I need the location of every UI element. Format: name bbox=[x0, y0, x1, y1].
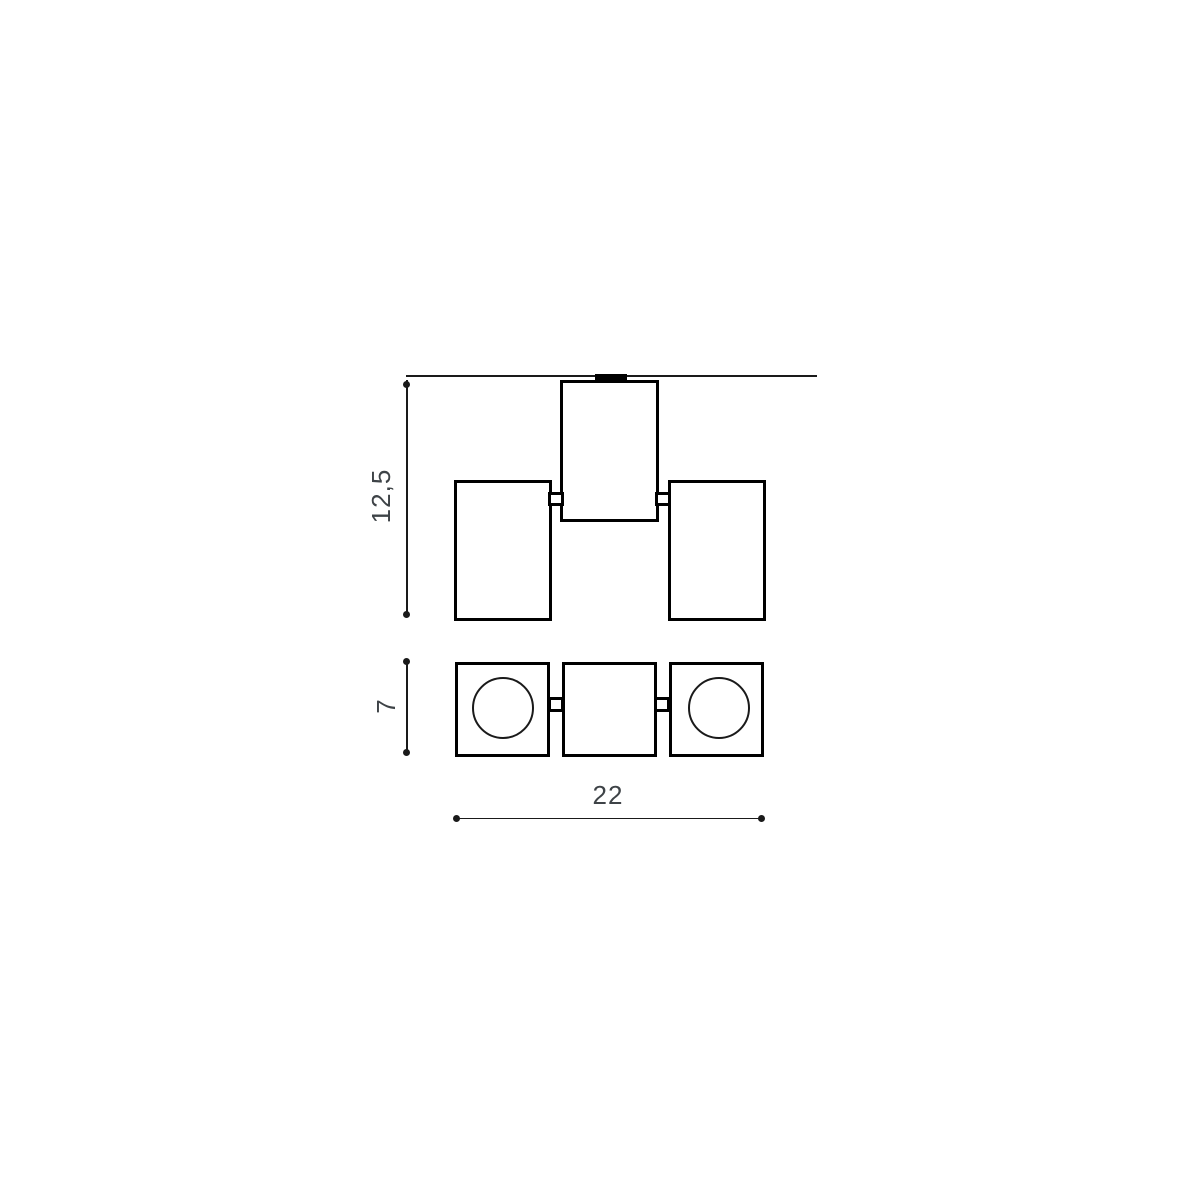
canopy-bottom-rect bbox=[562, 662, 657, 757]
depth-dimension-dot-bottom bbox=[403, 749, 410, 756]
depth-dimension-line bbox=[406, 661, 408, 753]
width-dimension-line bbox=[455, 818, 761, 820]
canopy-front-rect bbox=[560, 380, 659, 522]
depth-dimension-dot-top bbox=[403, 658, 410, 665]
left-joint-bottom bbox=[548, 697, 564, 712]
height-dimension-line bbox=[406, 380, 408, 616]
depth-dimension-label: 7 bbox=[371, 646, 401, 766]
left-joint-front bbox=[548, 492, 564, 506]
dimension-drawing: 12,5 7 22 bbox=[0, 0, 1200, 1200]
right-spot-front-rect bbox=[668, 480, 766, 621]
width-dimension-dot-right bbox=[758, 815, 765, 822]
mounting-tab bbox=[595, 374, 627, 383]
width-dimension-label: 22 bbox=[548, 780, 668, 810]
right-joint-bottom bbox=[654, 697, 670, 712]
height-dimension-dot-top bbox=[403, 381, 410, 388]
width-dimension-dot-left bbox=[453, 815, 460, 822]
height-dimension-label: 12,5 bbox=[366, 436, 396, 556]
height-dimension-dot-bottom bbox=[403, 611, 410, 618]
left-spot-front-rect bbox=[454, 480, 552, 621]
left-lens-circle bbox=[472, 677, 534, 739]
right-lens-circle bbox=[688, 677, 750, 739]
right-joint-front bbox=[655, 492, 671, 506]
